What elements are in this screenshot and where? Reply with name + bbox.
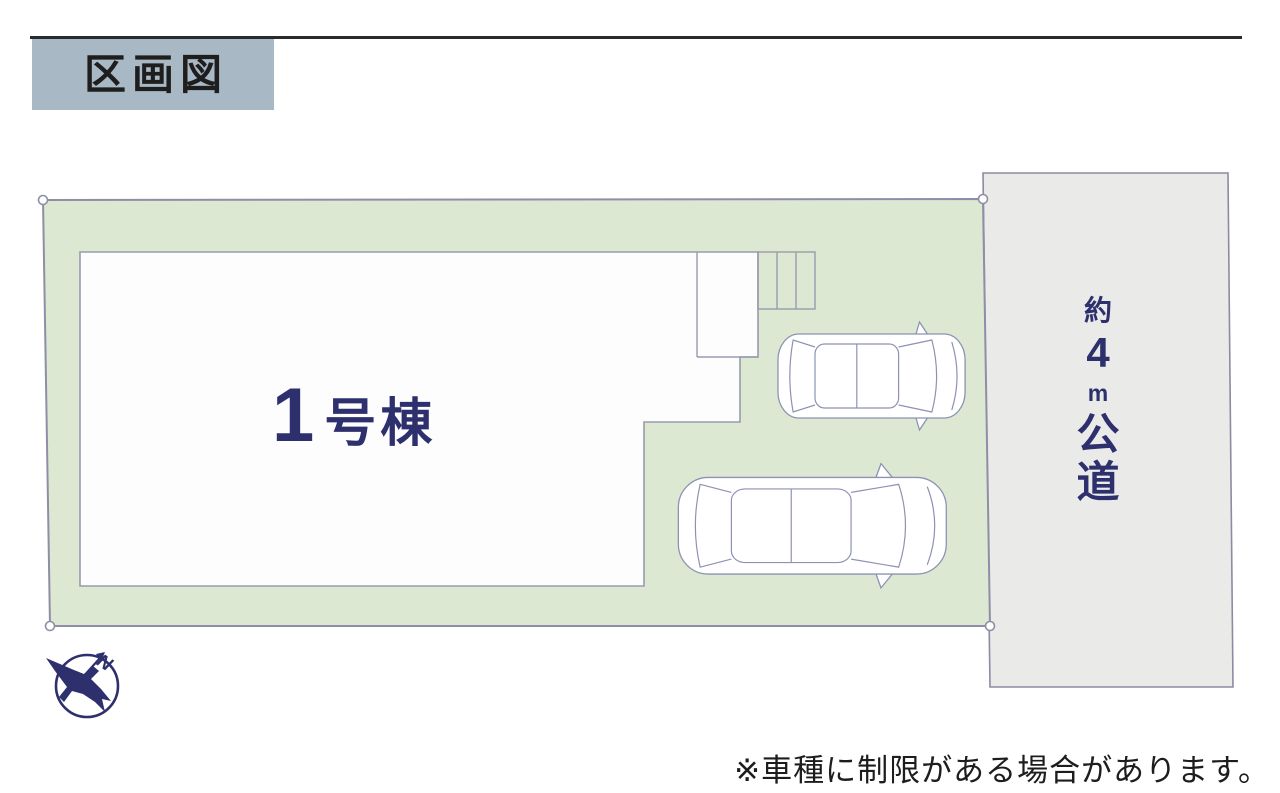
building-label: 1 号棟 — [272, 378, 436, 454]
road-label-char: m — [1088, 382, 1108, 405]
plot-corner-marker — [46, 622, 55, 631]
building-suffix: 号棟 — [324, 398, 436, 450]
plot-corner-marker — [979, 195, 988, 204]
road-label: 約 4 m 公 道 — [1072, 297, 1124, 510]
north-compass: N — [46, 651, 118, 717]
road-label-char: 公 — [1077, 414, 1120, 457]
parked-car-1 — [778, 322, 965, 430]
parked-car-2 — [678, 464, 946, 588]
plot-corner-marker — [39, 196, 48, 205]
road-label-char: 約 — [1084, 297, 1112, 325]
plot-plan-page: 区画図 — [0, 0, 1280, 793]
road-label-char: 4 — [1086, 332, 1109, 374]
road-label-char: 道 — [1077, 462, 1120, 505]
plot-corner-marker — [986, 622, 995, 631]
building-number: 1 — [272, 378, 314, 454]
vehicle-note: ※車種に制限がある場合があります。 — [734, 745, 1270, 790]
